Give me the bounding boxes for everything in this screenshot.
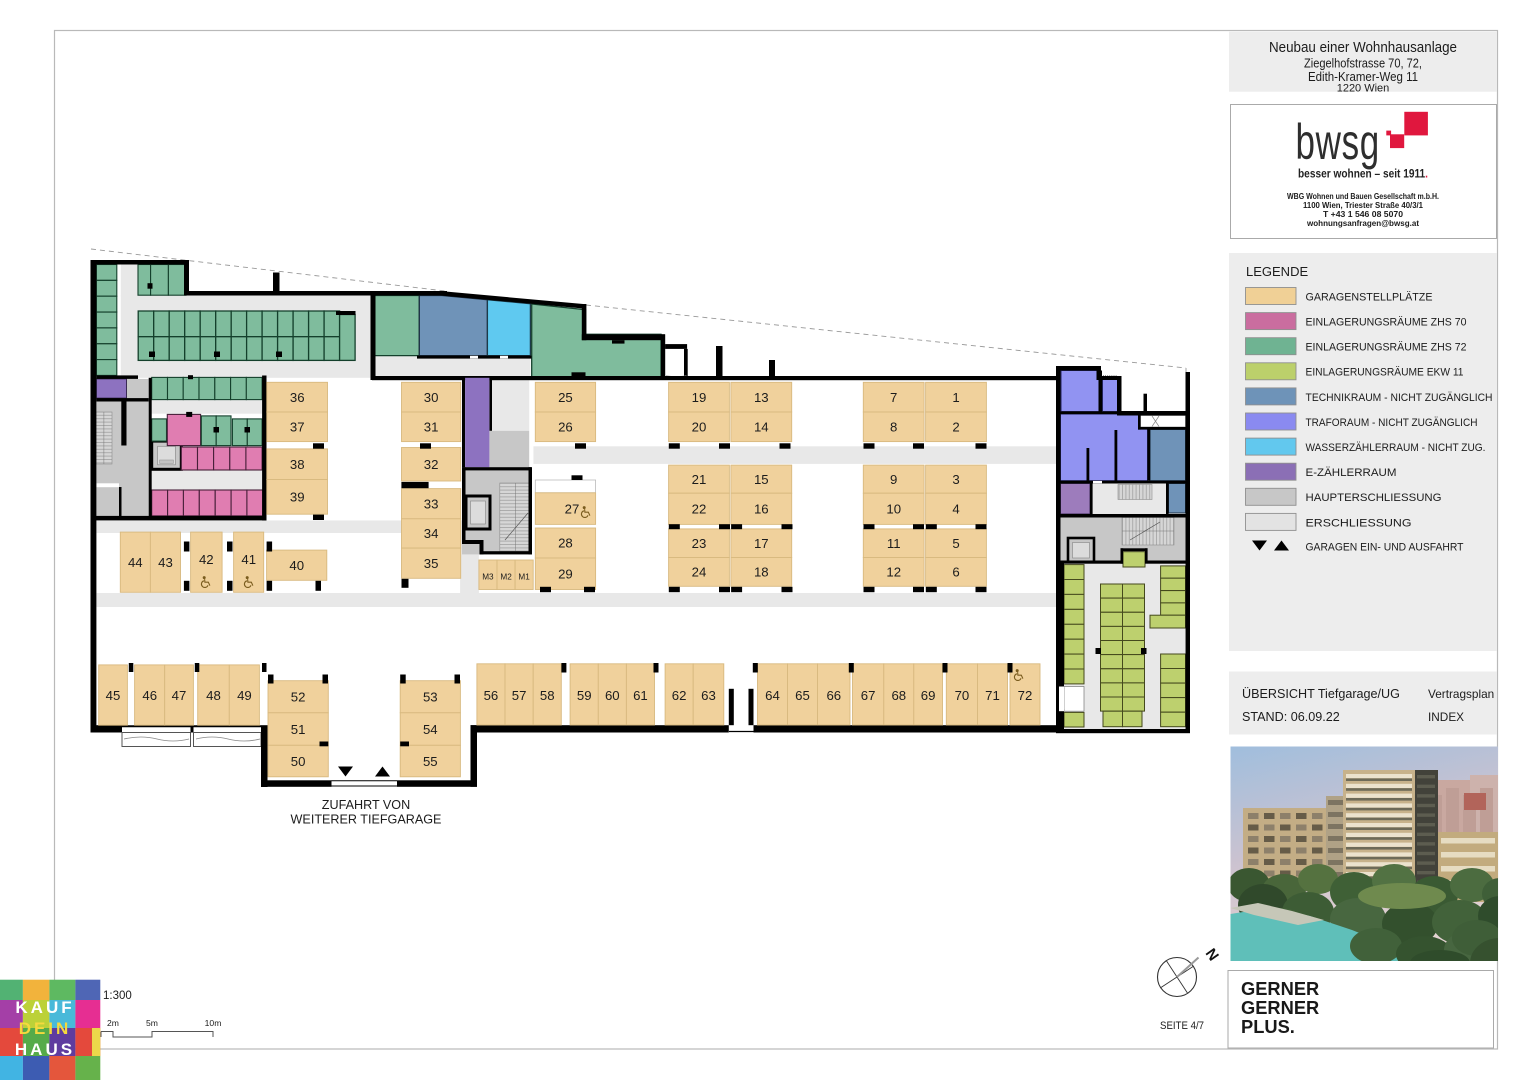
svg-text:57: 57 <box>512 688 527 703</box>
svg-text:67: 67 <box>861 688 876 703</box>
svg-text:GERNER: GERNER <box>1241 978 1319 999</box>
svg-text:26: 26 <box>558 420 573 435</box>
svg-text:47: 47 <box>172 688 187 703</box>
svg-text:70: 70 <box>955 688 970 703</box>
svg-text:SEITE 4/7: SEITE 4/7 <box>1160 1020 1204 1032</box>
svg-text:13: 13 <box>754 390 769 405</box>
svg-text:46: 46 <box>142 688 157 703</box>
svg-text:WASSERZÄHLERRAUM - NICHT ZUG.: WASSERZÄHLERRAUM - NICHT ZUG. <box>1306 442 1486 454</box>
svg-text:TECHNIKRAUM - NICHT ZUGÄNGLICH: TECHNIKRAUM - NICHT ZUGÄNGLICH <box>1306 392 1493 404</box>
svg-text:53: 53 <box>423 690 438 705</box>
svg-text:bwsg: bwsg <box>1295 115 1379 171</box>
svg-text:32: 32 <box>424 457 439 472</box>
svg-text:37: 37 <box>290 420 305 435</box>
svg-text:WEITERER TIEFGARAGE: WEITERER TIEFGARAGE <box>291 813 442 827</box>
svg-text:24: 24 <box>692 565 707 580</box>
svg-text:52: 52 <box>291 690 306 705</box>
svg-text:E-ZÄHLERRAUM: E-ZÄHLERRAUM <box>1306 467 1397 479</box>
svg-text:25: 25 <box>558 390 573 405</box>
svg-text:ZUFAHRT VON: ZUFAHRT VON <box>322 798 410 812</box>
svg-text:STAND: 06.09.22: STAND: 06.09.22 <box>1242 710 1340 724</box>
svg-text:3: 3 <box>952 472 959 487</box>
svg-text:28: 28 <box>558 536 573 551</box>
svg-text:6: 6 <box>952 565 959 580</box>
svg-text:5: 5 <box>952 536 959 551</box>
svg-text:21: 21 <box>692 472 707 487</box>
svg-text:39: 39 <box>290 490 305 505</box>
svg-text:19: 19 <box>692 390 707 405</box>
svg-text:16: 16 <box>754 502 769 517</box>
svg-text:65: 65 <box>795 688 810 703</box>
svg-text:DEIN: DEIN <box>19 1019 72 1038</box>
svg-text:TRAFORAUM - NICHT ZUGÄNGLICH: TRAFORAUM - NICHT ZUGÄNGLICH <box>1306 417 1478 429</box>
svg-text:59: 59 <box>577 688 592 703</box>
svg-text:5m: 5m <box>146 1018 158 1028</box>
svg-text:36: 36 <box>290 390 305 405</box>
svg-text:20: 20 <box>692 420 707 435</box>
svg-text:ERSCHLIESSUNG: ERSCHLIESSUNG <box>1306 517 1412 529</box>
svg-text:22: 22 <box>692 502 707 517</box>
svg-text:9: 9 <box>890 472 897 487</box>
svg-text:35: 35 <box>424 556 439 571</box>
svg-text:33: 33 <box>424 496 439 511</box>
svg-text:M1: M1 <box>518 573 530 582</box>
svg-text:62: 62 <box>672 688 687 703</box>
svg-text:HAUS: HAUS <box>15 1040 75 1059</box>
svg-text:Vertragsplan: Vertragsplan <box>1428 687 1494 701</box>
svg-text:GERNER: GERNER <box>1241 997 1319 1018</box>
svg-text:34: 34 <box>424 526 439 541</box>
svg-text:63: 63 <box>701 688 716 703</box>
svg-text:18: 18 <box>754 565 769 580</box>
svg-text:GARAGEN EIN- UND AUSFAHRT: GARAGEN EIN- UND AUSFAHRT <box>1306 542 1464 554</box>
svg-text:8: 8 <box>890 420 897 435</box>
svg-text:49: 49 <box>237 688 252 703</box>
svg-text:ÜBERSICHT Tiefgarage/UG: ÜBERSICHT Tiefgarage/UG <box>1242 687 1400 701</box>
svg-text:55: 55 <box>423 754 438 769</box>
svg-text:INDEX: INDEX <box>1428 710 1464 724</box>
svg-text:69: 69 <box>921 688 936 703</box>
svg-text:58: 58 <box>540 688 555 703</box>
svg-text:1: 1 <box>952 390 959 405</box>
svg-text:1:300: 1:300 <box>103 990 132 1002</box>
svg-text:54: 54 <box>423 722 438 737</box>
svg-text:17: 17 <box>754 536 769 551</box>
svg-text:EINLAGERUNGSRÄUME ZHS 70: EINLAGERUNGSRÄUME ZHS 70 <box>1306 317 1467 329</box>
svg-text:41: 41 <box>241 552 256 567</box>
svg-text:72: 72 <box>1018 688 1033 703</box>
svg-text:EINLAGERUNGSRÄUME EKW 11: EINLAGERUNGSRÄUME EKW 11 <box>1306 367 1464 379</box>
svg-text:2m: 2m <box>107 1018 119 1028</box>
svg-text:45: 45 <box>106 688 121 703</box>
svg-text:61: 61 <box>633 688 648 703</box>
svg-text:EINLAGERUNGSRÄUME ZHS 72: EINLAGERUNGSRÄUME ZHS 72 <box>1306 342 1467 354</box>
svg-text:M2: M2 <box>500 573 512 582</box>
svg-text:LEGENDE: LEGENDE <box>1246 264 1308 279</box>
svg-text:7: 7 <box>890 390 897 405</box>
svg-text:29: 29 <box>558 567 573 582</box>
svg-text:31: 31 <box>424 420 439 435</box>
svg-text:2: 2 <box>952 420 959 435</box>
svg-text:64: 64 <box>765 688 780 703</box>
svg-text:56: 56 <box>484 688 499 703</box>
svg-text:43: 43 <box>158 555 173 570</box>
svg-text:15: 15 <box>754 472 769 487</box>
svg-text:68: 68 <box>891 688 906 703</box>
svg-text:KAUF: KAUF <box>15 998 74 1017</box>
svg-text:42: 42 <box>199 552 214 567</box>
svg-text:1220 Wien: 1220 Wien <box>1337 83 1390 95</box>
svg-text:12: 12 <box>886 565 901 580</box>
svg-text:11: 11 <box>887 536 901 551</box>
svg-text:Neubau einer Wohnhausanlage: Neubau einer Wohnhausanlage <box>1269 40 1457 56</box>
svg-text:14: 14 <box>754 420 769 435</box>
svg-text:4: 4 <box>952 502 959 517</box>
svg-text:71: 71 <box>985 688 1000 703</box>
svg-text:44: 44 <box>128 555 143 570</box>
svg-text:66: 66 <box>826 688 841 703</box>
svg-text:30: 30 <box>424 390 439 405</box>
svg-text:10: 10 <box>886 502 901 517</box>
svg-text:wohnungsanfragen@bwsg.at: wohnungsanfragen@bwsg.at <box>1306 218 1419 228</box>
svg-text:GARAGENSTELLPLÄTZE: GARAGENSTELLPLÄTZE <box>1306 291 1433 303</box>
svg-text:PLUS.: PLUS. <box>1241 1016 1295 1037</box>
svg-text:50: 50 <box>291 754 306 769</box>
svg-text:10m: 10m <box>205 1018 222 1028</box>
svg-text:besser wohnen – seit 1911.: besser wohnen – seit 1911. <box>1298 168 1428 181</box>
svg-text:27: 27 <box>565 501 580 516</box>
svg-text:M3: M3 <box>482 573 494 582</box>
svg-text:23: 23 <box>692 536 707 551</box>
svg-text:51: 51 <box>291 722 306 737</box>
svg-text:HAUPTERSCHLIESSUNG: HAUPTERSCHLIESSUNG <box>1306 492 1442 504</box>
svg-text:40: 40 <box>289 558 304 573</box>
svg-text:48: 48 <box>206 688 221 703</box>
svg-text:38: 38 <box>290 457 305 472</box>
svg-text:60: 60 <box>605 688 620 703</box>
